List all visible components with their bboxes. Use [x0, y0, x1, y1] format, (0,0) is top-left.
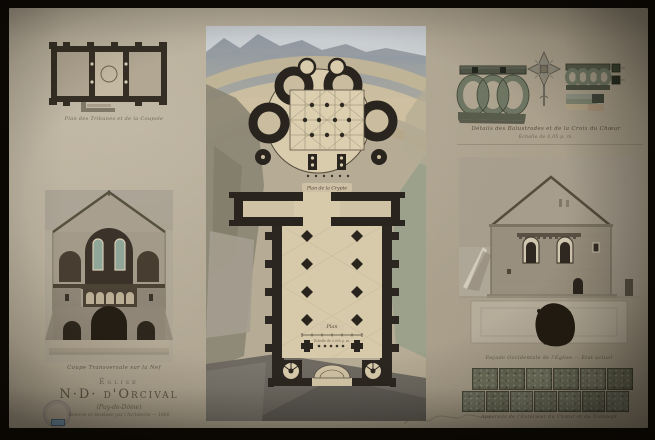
- tribune-plan-drawing: [47, 40, 171, 114]
- section-caption: Coupe Transversale sur la Nef: [39, 365, 189, 372]
- slide-photograph: Plan des Tribunes et de la Coupole: [0, 0, 655, 440]
- architectural-plate: Plan des Tribunes et de la Coupole: [9, 8, 648, 428]
- masonry-swatch: [534, 391, 557, 412]
- church-plan-watercolor: Plan de la Crypte: [206, 26, 426, 421]
- balustrade-details-drawing: [456, 50, 636, 124]
- masonry-swatch: [580, 368, 606, 390]
- pencil-annotation: [399, 406, 499, 432]
- masonry-swatch: [499, 368, 525, 390]
- masonry-swatch: [582, 391, 605, 412]
- details-caption: Détails des Balustrades et de la Croix d…: [456, 126, 636, 133]
- title-line-eglise: Église: [39, 378, 199, 386]
- radiating-chapel: [361, 105, 393, 137]
- color-legend: [612, 64, 625, 84]
- crypt-caption: Plan de la Crypte: [306, 186, 348, 192]
- masonry-swatch: [526, 368, 552, 390]
- transept-plan: [229, 192, 405, 226]
- details-subcaption: Échelle de 0,05 p. m.: [456, 135, 636, 140]
- small-window: [593, 243, 599, 252]
- transverse-section-drawing: [45, 190, 173, 362]
- catalog-sticker: [51, 419, 65, 426]
- section-ground-level: [45, 306, 173, 355]
- forecourt: [459, 294, 639, 346]
- tribune-plan-stair-stub: [81, 102, 115, 112]
- masonry-swatch: [510, 391, 533, 412]
- tribune-plan-caption: Plan des Tribunes et de la Coupole: [39, 116, 189, 122]
- masonry-swatch: [606, 391, 629, 412]
- tribune-plan-walls: [49, 42, 167, 106]
- clerestory-window: [93, 239, 103, 270]
- scale-caption: Échelle de 0,005 p. m.: [314, 338, 350, 343]
- masonry-swatch: [558, 391, 581, 412]
- chapel-turret: [299, 59, 315, 75]
- choir-cross-ornament: [528, 52, 560, 106]
- balustrade-large: [457, 66, 529, 124]
- nave-plan: Plan Échelle de 0,005 p. m.: [265, 226, 399, 358]
- radiating-chapel: [253, 107, 285, 139]
- side-door: [573, 278, 583, 296]
- swatch-row: [472, 368, 644, 390]
- masonry-swatch: [553, 368, 579, 390]
- divider-rule: [457, 144, 643, 145]
- masonry-swatch: [607, 368, 633, 390]
- facade-elevation-drawing: [459, 151, 639, 351]
- section-triforium: [53, 288, 165, 307]
- facade-caption: Façade Occidentale de l'Église — État ac…: [459, 355, 639, 361]
- cornice-profile: [566, 94, 604, 111]
- masonry-swatch: [472, 368, 498, 390]
- balustrade-small: [566, 64, 610, 90]
- clerestory-window: [115, 239, 125, 270]
- title-line-orcival: N·D· d'Orcival: [39, 387, 199, 402]
- plan-caption: Plan: [325, 324, 337, 330]
- chapel-turret: [329, 59, 345, 75]
